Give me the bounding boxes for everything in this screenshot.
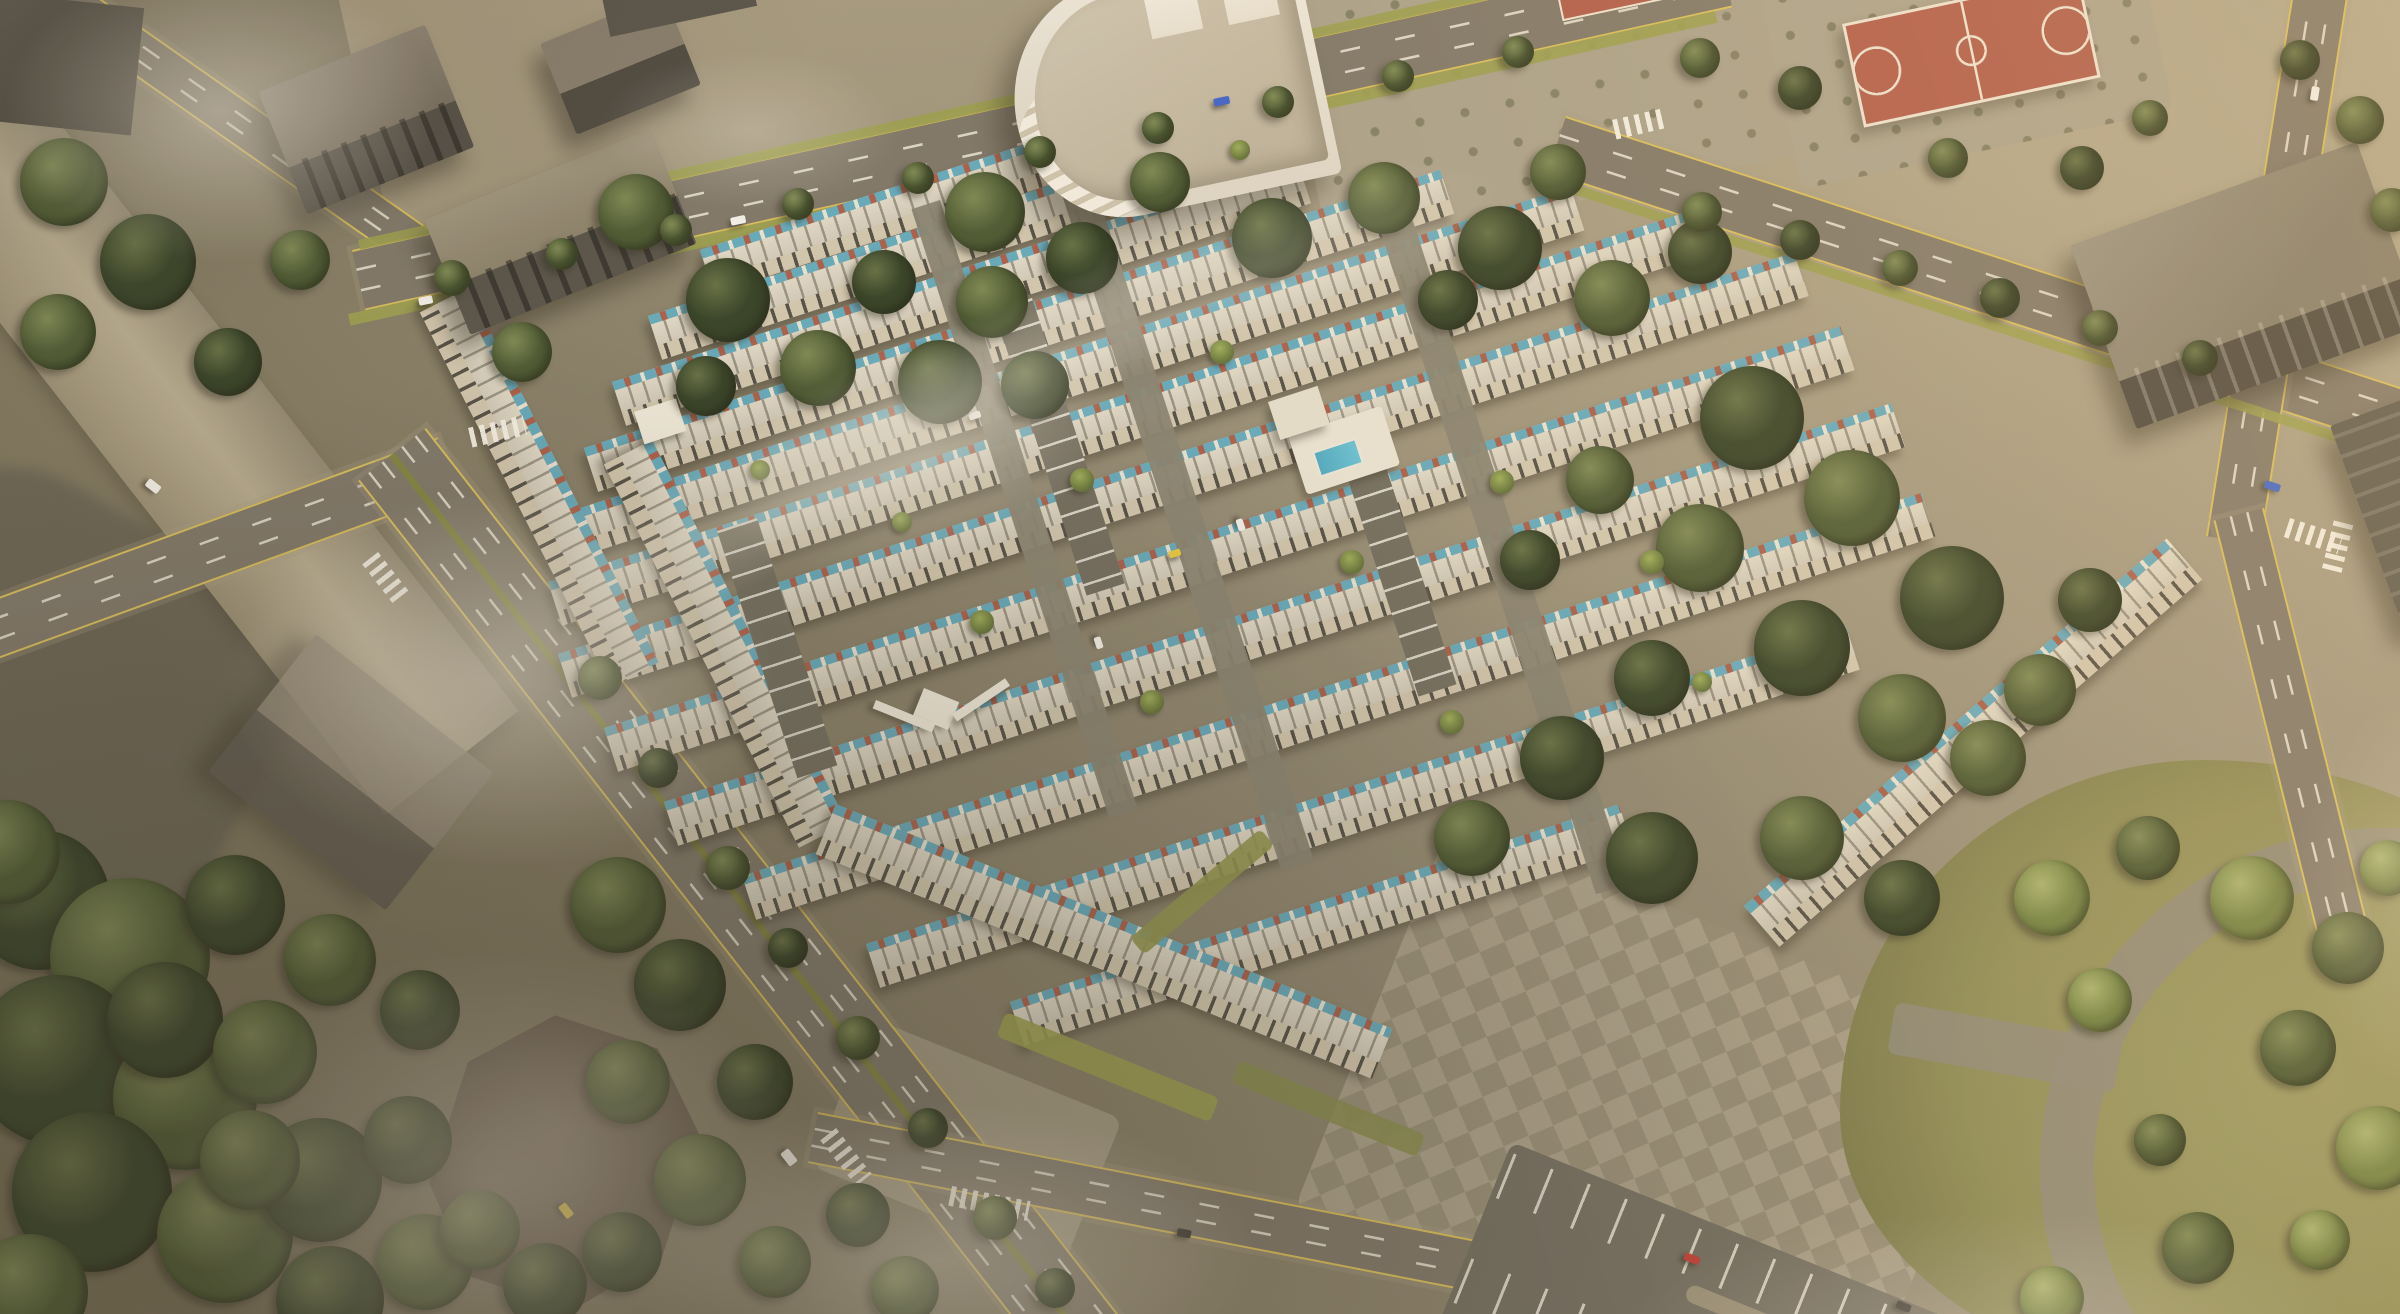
aerial-3d-render: [0, 0, 2400, 1314]
warm-grade-overlay: [0, 0, 2400, 1314]
